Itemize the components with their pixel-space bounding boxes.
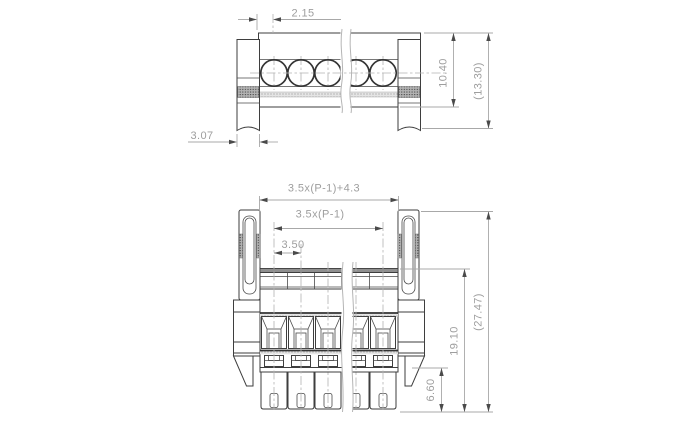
flange-right xyxy=(398,40,421,131)
top-view-hatch-strip xyxy=(259,92,421,97)
leg-row xyxy=(261,372,396,409)
drawing-svg: 2.15 3.07 10.40 (13.30) xyxy=(0,0,680,440)
latch-left xyxy=(234,210,261,386)
dim-flange-width-label: 3.07 xyxy=(190,130,213,142)
dim-pitch-label: 3.50 xyxy=(281,239,304,251)
top-view: 2.15 3.07 10.40 (13.30) xyxy=(188,8,493,148)
dim-pole-span: 3.5x(P-1) xyxy=(274,209,383,231)
dim-pitch: 3.50 xyxy=(274,239,305,255)
dim-top-overall-height: (13.30) xyxy=(422,33,493,129)
front-view-break-line xyxy=(342,262,354,412)
dim-pin-offset-label: 2.15 xyxy=(291,8,314,20)
dim-overall-width-label: 3.5x(P-1)+4.3 xyxy=(288,183,360,195)
dim-pole-span-label: 3.5x(P-1) xyxy=(296,209,345,221)
mating-face-band xyxy=(260,269,398,273)
dim-front-overall-height-label: (27.47) xyxy=(473,293,485,331)
flange-left xyxy=(237,40,260,131)
dim-top-body-height-label: 10.40 xyxy=(438,58,450,88)
dim-front-body-height-label: 19.10 xyxy=(449,326,461,356)
dim-leg-length-label: 6.60 xyxy=(425,378,437,401)
latch-right xyxy=(398,210,425,386)
top-view-break-line xyxy=(341,29,352,113)
dim-top-overall-height-label: (13.30) xyxy=(473,62,485,100)
dim-flange-width: 3.07 xyxy=(188,130,278,147)
dim-leg-length: 6.60 xyxy=(412,368,448,412)
dim-pin-offset: 2.15 xyxy=(238,8,341,31)
technical-drawing-canvas: 2.15 3.07 10.40 (13.30) xyxy=(0,0,680,440)
front-view: 3.5x(P-1)+4.3 3.5x(P-1) 3.50 19.10 xyxy=(234,183,494,413)
